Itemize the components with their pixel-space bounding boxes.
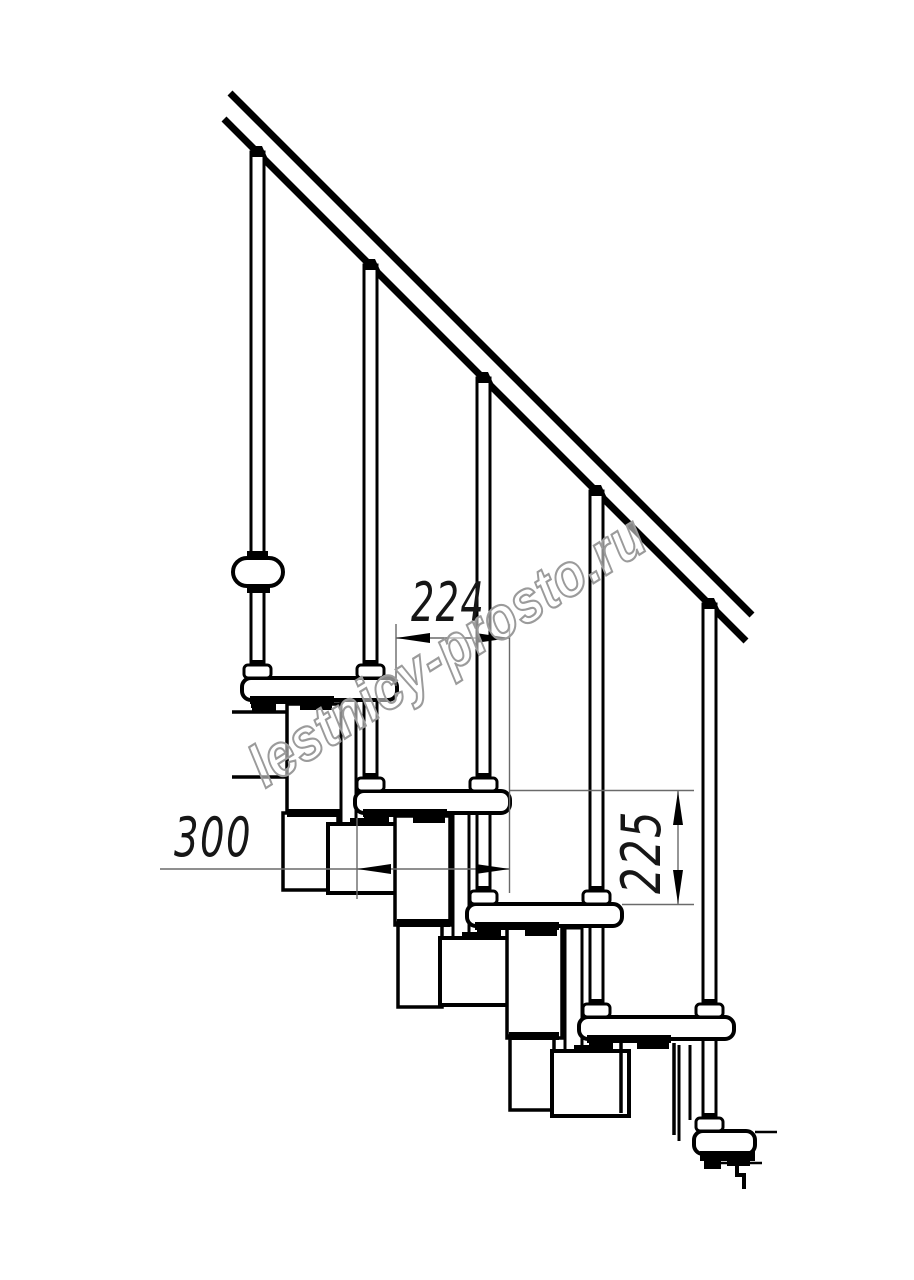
baluster-collar-8 (696, 1004, 723, 1017)
tread-5 (694, 1131, 755, 1154)
support-module-b1 (328, 824, 403, 893)
wall-bracket-cap-top (247, 551, 268, 559)
module-joint-2 (397, 919, 450, 927)
baluster-5-foot (703, 1152, 716, 1160)
support-module-a3-lower (510, 1036, 554, 1110)
wall-bracket-cap-bottom (247, 585, 270, 593)
support-module-a2 (395, 816, 450, 925)
collar-cap-8 (702, 999, 717, 1005)
support-module-a3 (507, 926, 562, 1038)
baluster-collar-9 (696, 1118, 723, 1131)
dim-225-arrow-up (673, 791, 683, 825)
collar-cap-1 (250, 660, 265, 666)
baluster-4-foot (590, 1039, 603, 1047)
baluster-5 (703, 604, 716, 1134)
tread-2-tab-b (413, 815, 445, 823)
tread-3-tab-b (525, 928, 557, 936)
support-module-a2-lower (398, 923, 442, 1007)
wall-bracket (233, 558, 283, 586)
dim-300-arrow-right (476, 864, 510, 874)
baluster-collar-1 (244, 665, 271, 678)
bottom-step-outline (737, 1163, 744, 1189)
collar-cap-7 (589, 999, 604, 1005)
collar-cap-5 (476, 886, 491, 892)
baluster-collar-7 (583, 1004, 610, 1017)
baluster-collar-4 (470, 778, 497, 791)
baluster-1 (251, 152, 264, 682)
baluster-2-foot (364, 813, 377, 821)
collar-cap-4 (476, 773, 491, 779)
baluster-3-foot (477, 926, 491, 934)
staircase-technical-drawing: 224300225lestnicy-prosto.ru (0, 0, 914, 1280)
baluster-collar-5 (470, 891, 497, 904)
collar-cap-9 (702, 1113, 717, 1119)
drawing-canvas: 224300225lestnicy-prosto.ru (0, 0, 914, 1280)
dim-300-label: 300 (174, 806, 252, 869)
support-module-b3 (552, 1051, 629, 1116)
tread-4-tab-b (637, 1041, 669, 1049)
baluster-collar-3 (357, 778, 384, 791)
dim-225-arrow-down (673, 870, 683, 904)
module-joint-1 (287, 809, 341, 817)
collar-cap-3 (363, 773, 378, 779)
module-joint-3 (509, 1032, 559, 1040)
baluster-collar-6 (583, 891, 610, 904)
tread-5-tab-a (704, 1160, 721, 1169)
dim-225-label: 225 (610, 810, 673, 894)
collar-cap-6 (589, 886, 604, 892)
baluster-1-foot (251, 700, 264, 708)
